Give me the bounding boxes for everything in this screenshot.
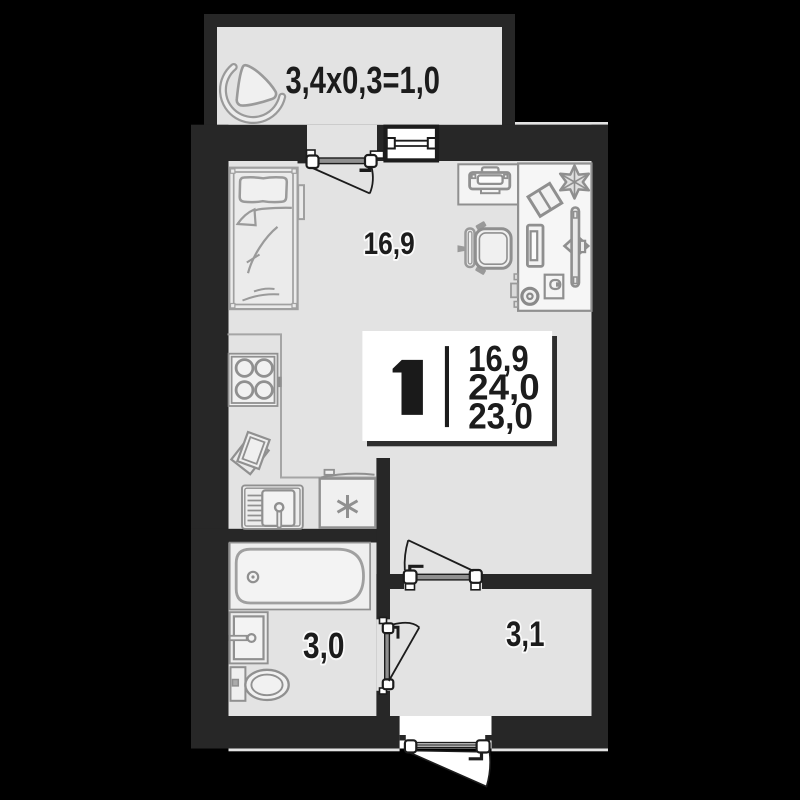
svg-text:23,0: 23,0 bbox=[468, 396, 533, 437]
svg-text:3,4x0,3=1,0: 3,4x0,3=1,0 bbox=[286, 60, 441, 102]
svg-text:16,9: 16,9 bbox=[364, 225, 415, 261]
svg-text:3,0: 3,0 bbox=[303, 625, 345, 666]
svg-text:3,1: 3,1 bbox=[506, 614, 545, 654]
